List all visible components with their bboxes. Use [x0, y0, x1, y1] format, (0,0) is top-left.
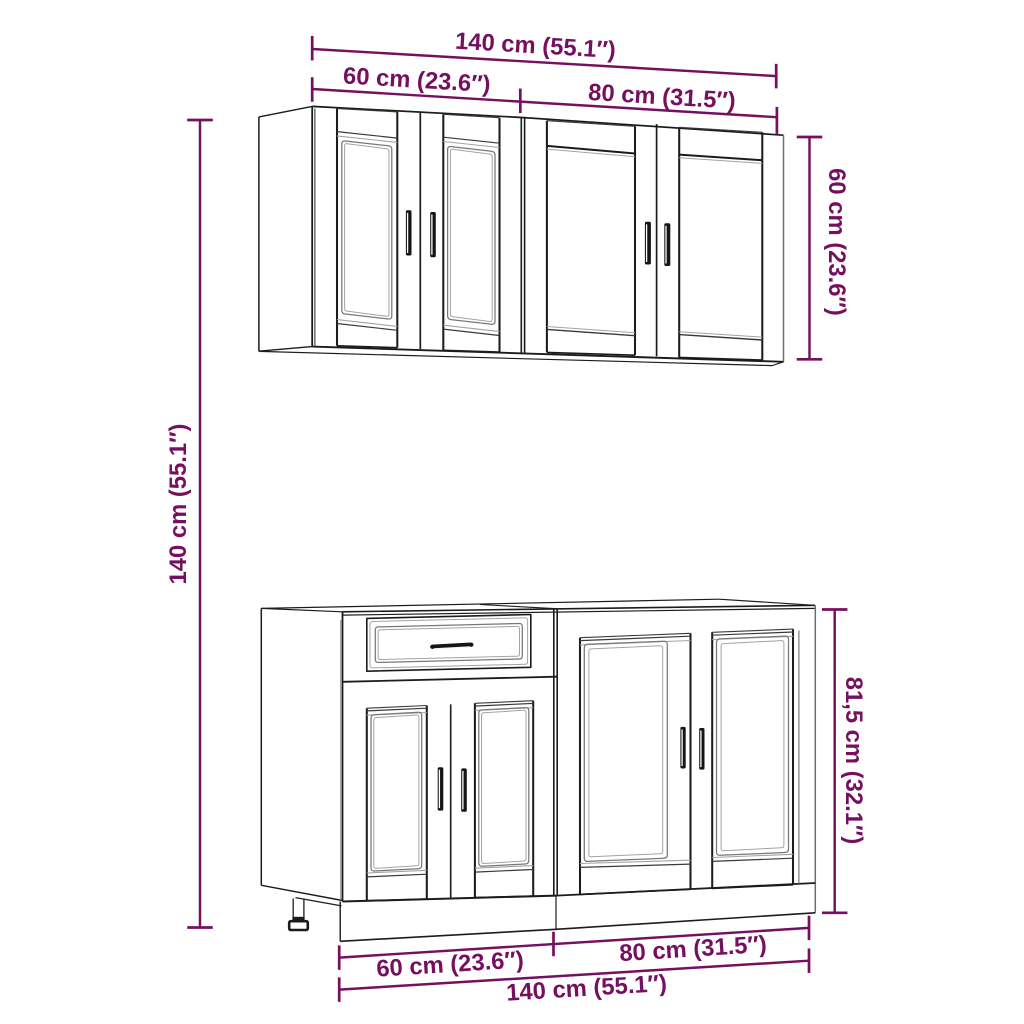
svg-text:81,5 cm (32.1″): 81,5 cm (32.1″): [840, 677, 867, 845]
svg-text:140 cm (55.1″): 140 cm (55.1″): [165, 424, 192, 585]
svg-text:60 cm (23.6″): 60 cm (23.6″): [823, 168, 850, 316]
